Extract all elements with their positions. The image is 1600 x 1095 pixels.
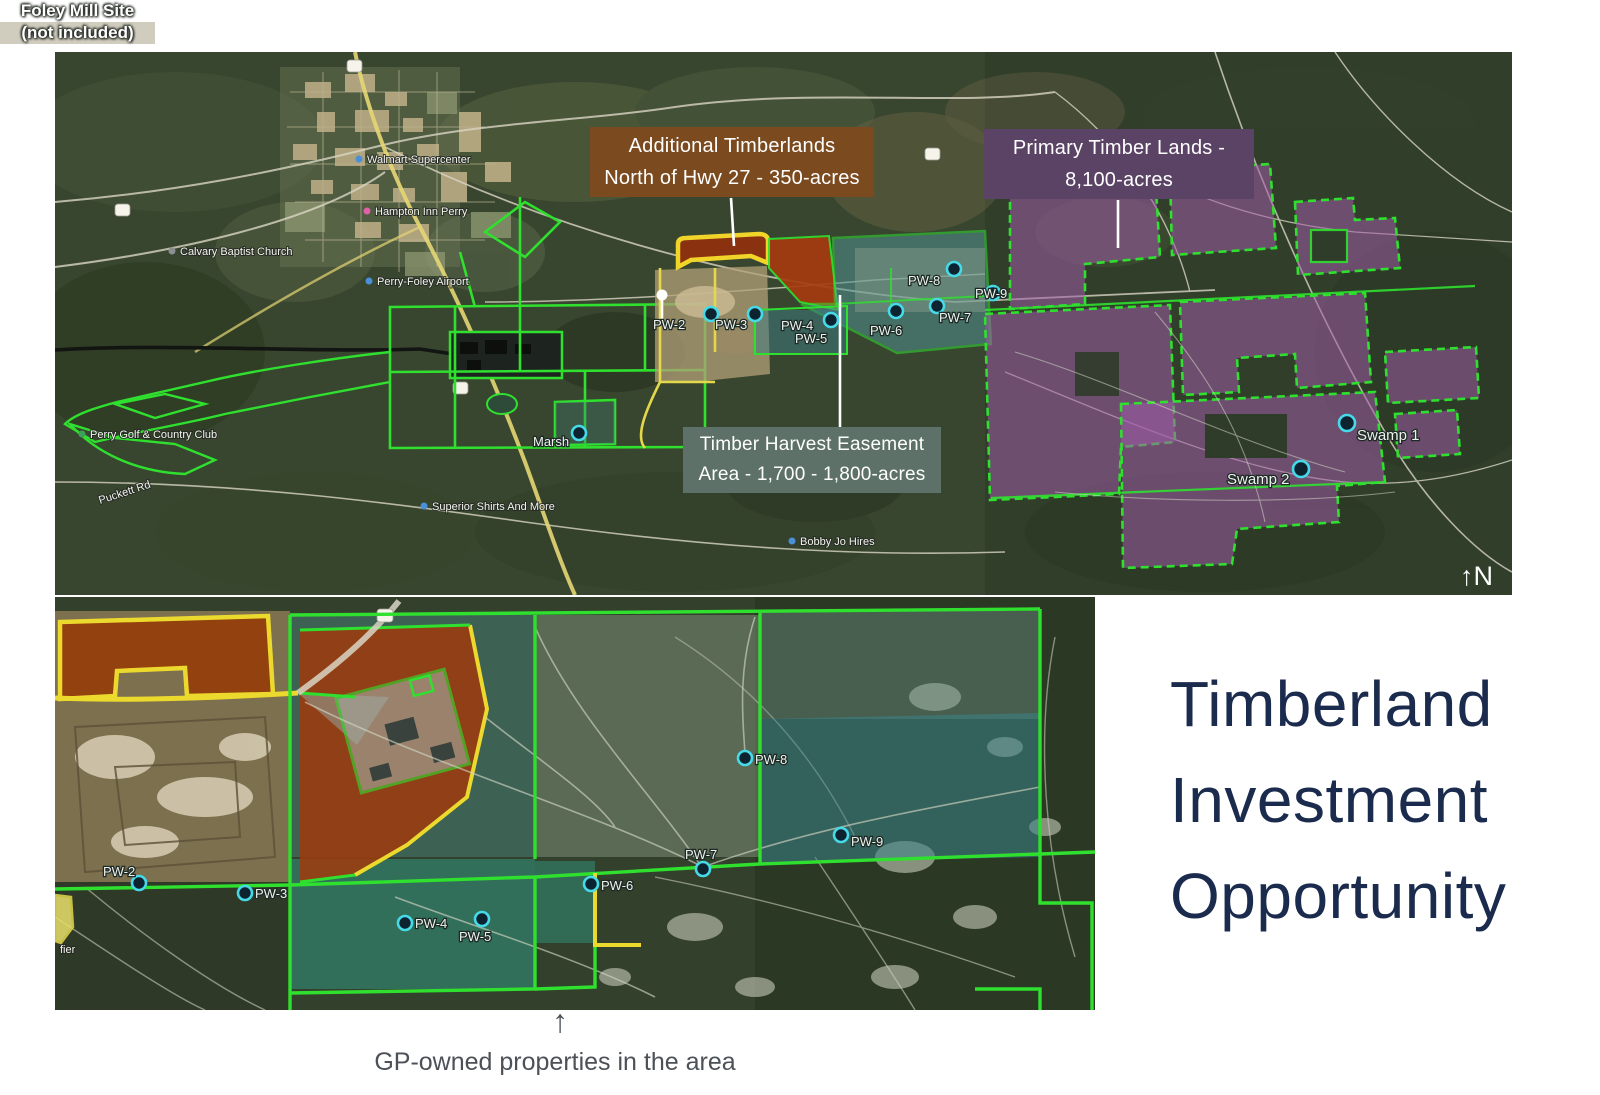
marker-label: PW-3	[255, 886, 287, 901]
marker-label: PW-5	[795, 331, 827, 346]
edge-place-label: fier	[60, 944, 76, 956]
marker-label: PW-7	[939, 310, 971, 325]
marker-label: PW-6	[601, 878, 633, 893]
marker-label: PW-2	[653, 317, 685, 332]
marker-label: PW-2	[103, 864, 135, 879]
slide: Walmart Supercenter Hampton Inn Perry Ca…	[0, 0, 1600, 1095]
detail-map-canvas: PW-2 PW-3 PW-4 PW-5 PW-6 PW-7 PW-8 PW-9 …	[55, 597, 1095, 1010]
detail-satellite-map: PW-2 PW-3 PW-4 PW-5 PW-6 PW-7 PW-8 PW-9 …	[55, 597, 1095, 1010]
marker-label: Swamp 1	[1357, 427, 1420, 444]
marker-label: PW-9	[975, 286, 1007, 301]
poi-label: Bobby Jo Hires	[800, 536, 875, 548]
map-caption: GP-owned properties in the area	[320, 1048, 790, 1077]
poi-label: Calvary Baptist Church	[180, 246, 293, 258]
callout-foley-mill-site: Foley Mill Site (not included)	[0, 0, 155, 44]
marker-label: PW-9	[851, 834, 883, 849]
marker-label: PW-5	[459, 929, 491, 944]
page-title: Timberland Investment Opportunity	[1170, 656, 1570, 944]
forest-bottom-left	[55, 882, 290, 1010]
poi-label: Perry Golf & Country Club	[90, 429, 217, 441]
poi-label: Walmart Supercenter	[367, 154, 471, 166]
marker-label: PW-4	[415, 916, 447, 931]
up-arrow-icon: ↑	[525, 1004, 595, 1038]
poi-label: Superior Shirts And More	[432, 501, 555, 513]
marker-label: PW-7	[685, 847, 717, 862]
marker-label: Swamp 2	[1227, 471, 1290, 488]
compass-north-indicator: ↑N	[1460, 561, 1493, 591]
marker-label: PW-8	[908, 273, 940, 288]
marker-label: PW-6	[870, 323, 902, 338]
marker-label: PW-8	[755, 752, 787, 767]
marker-label: Marsh	[533, 434, 569, 449]
poi-label: Perry-Foley Airport	[377, 276, 469, 288]
callout-primary-timber-lands: Primary Timber Lands - 8,100-acres	[984, 129, 1254, 199]
callout-harvest-easement: Timber Harvest Easement Area - 1,700 - 1…	[683, 427, 941, 493]
marker-label: PW-3	[715, 317, 747, 332]
callout-additional-timberlands: Additional Timberlands North of Hwy 27 -…	[590, 127, 874, 197]
poi-label: Hampton Inn Perry	[375, 206, 468, 218]
